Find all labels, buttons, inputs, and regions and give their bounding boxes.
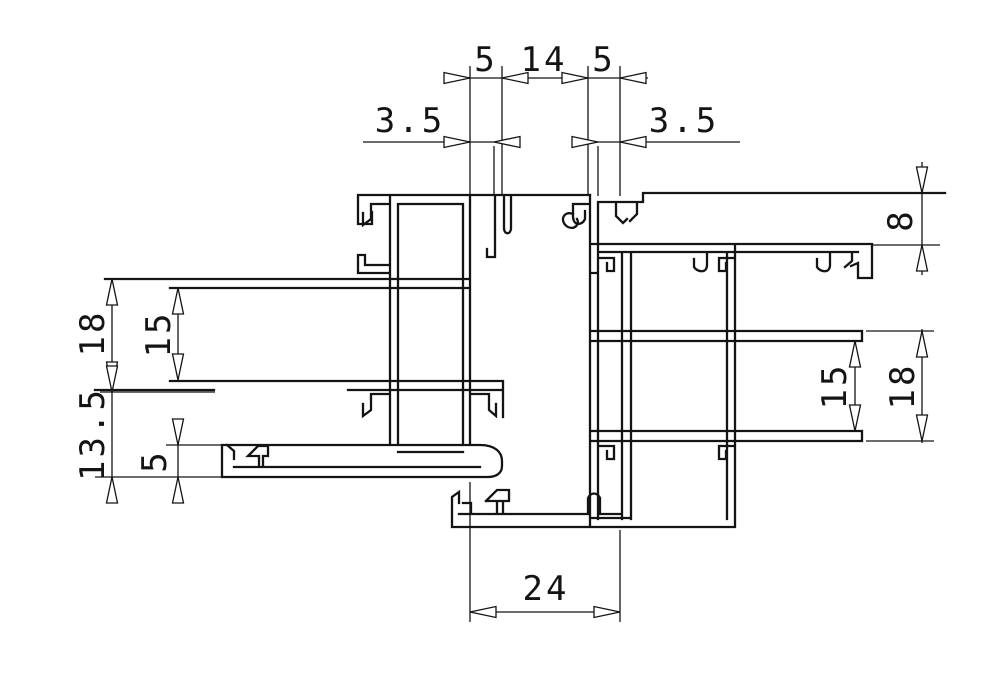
dim-label-right-top-height: 8 bbox=[881, 208, 921, 231]
arrowhead bbox=[173, 419, 184, 445]
dim-label-top-span-center: 14 bbox=[521, 40, 568, 80]
dim-label-left-channel-height: 5 bbox=[135, 449, 175, 472]
arrowhead bbox=[620, 73, 646, 84]
arrowhead bbox=[173, 288, 184, 314]
arrowhead bbox=[620, 137, 646, 148]
arrowhead bbox=[917, 331, 928, 357]
dim-label-top-wall-right: 3.5 bbox=[649, 101, 719, 141]
dim-label-bottom-track-width: 24 bbox=[523, 569, 570, 609]
arrowhead bbox=[444, 137, 470, 148]
arrowhead bbox=[173, 477, 184, 503]
right-profile-outline bbox=[452, 193, 945, 527]
dim-label-right-depth-inner: 15 bbox=[815, 363, 855, 410]
arrowhead bbox=[572, 137, 598, 148]
dim-label-top-slot-right: 5 bbox=[592, 40, 615, 80]
dimension-arrows bbox=[107, 73, 928, 618]
drawing-canvas: 5 14 5 3.5 3.5 18 15 13.5 5 8 15 18 24 bbox=[0, 0, 1000, 681]
dim-label-right-depth-outer: 18 bbox=[883, 363, 923, 410]
arrowhead bbox=[594, 607, 620, 618]
arrowhead bbox=[494, 137, 520, 148]
profile-drawing: 5 14 5 3.5 3.5 18 15 13.5 5 8 15 18 24 bbox=[0, 0, 1000, 681]
dim-label-top-wall-left: 3.5 bbox=[375, 101, 445, 141]
arrowhead bbox=[917, 415, 928, 441]
dimension-labels: 5 14 5 3.5 3.5 18 15 13.5 5 8 15 18 24 bbox=[73, 40, 923, 609]
dim-label-left-depth-inner: 15 bbox=[139, 311, 179, 358]
arrowhead bbox=[107, 279, 118, 305]
arrowhead bbox=[917, 245, 928, 271]
arrowhead bbox=[470, 607, 496, 618]
arrowhead bbox=[917, 167, 928, 193]
dim-label-left-lower-depth: 13.5 bbox=[73, 387, 113, 481]
dim-label-left-depth-outer: 18 bbox=[73, 310, 113, 357]
dim-label-top-slot-left: 5 bbox=[474, 40, 497, 80]
dimension-lines bbox=[95, 66, 940, 622]
arrowhead bbox=[444, 73, 470, 84]
